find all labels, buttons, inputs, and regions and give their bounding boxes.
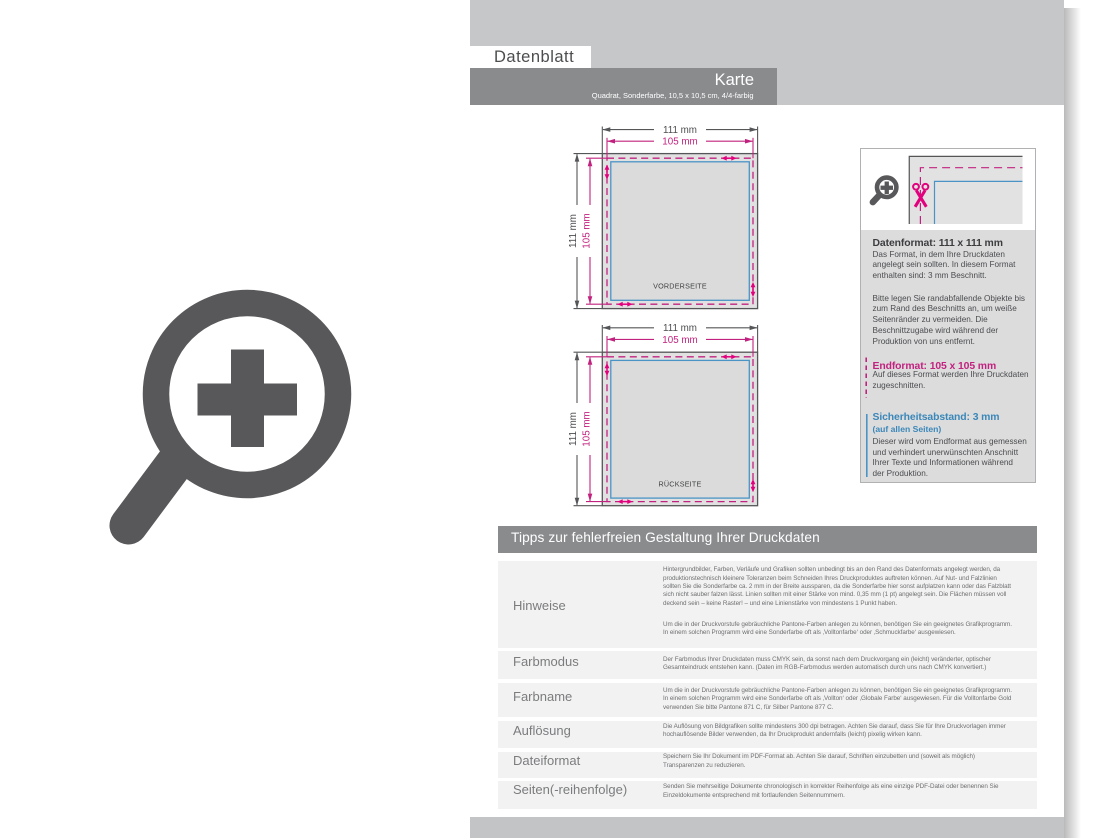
- svg-text:105 mm: 105 mm: [662, 335, 697, 346]
- svg-text:111 mm: 111 mm: [568, 412, 579, 446]
- svg-text:111 mm: 111 mm: [663, 125, 697, 136]
- svg-text:105 mm: 105 mm: [582, 411, 593, 446]
- svg-text:VORDERSEITE: VORDERSEITE: [653, 282, 707, 291]
- svg-text:105 mm: 105 mm: [582, 213, 593, 248]
- svg-text:111 mm: 111 mm: [568, 214, 579, 248]
- svg-text:RÜCKSEITE: RÜCKSEITE: [659, 480, 702, 489]
- svg-text:111 mm: 111 mm: [663, 323, 697, 334]
- svg-text:105 mm: 105 mm: [662, 137, 697, 148]
